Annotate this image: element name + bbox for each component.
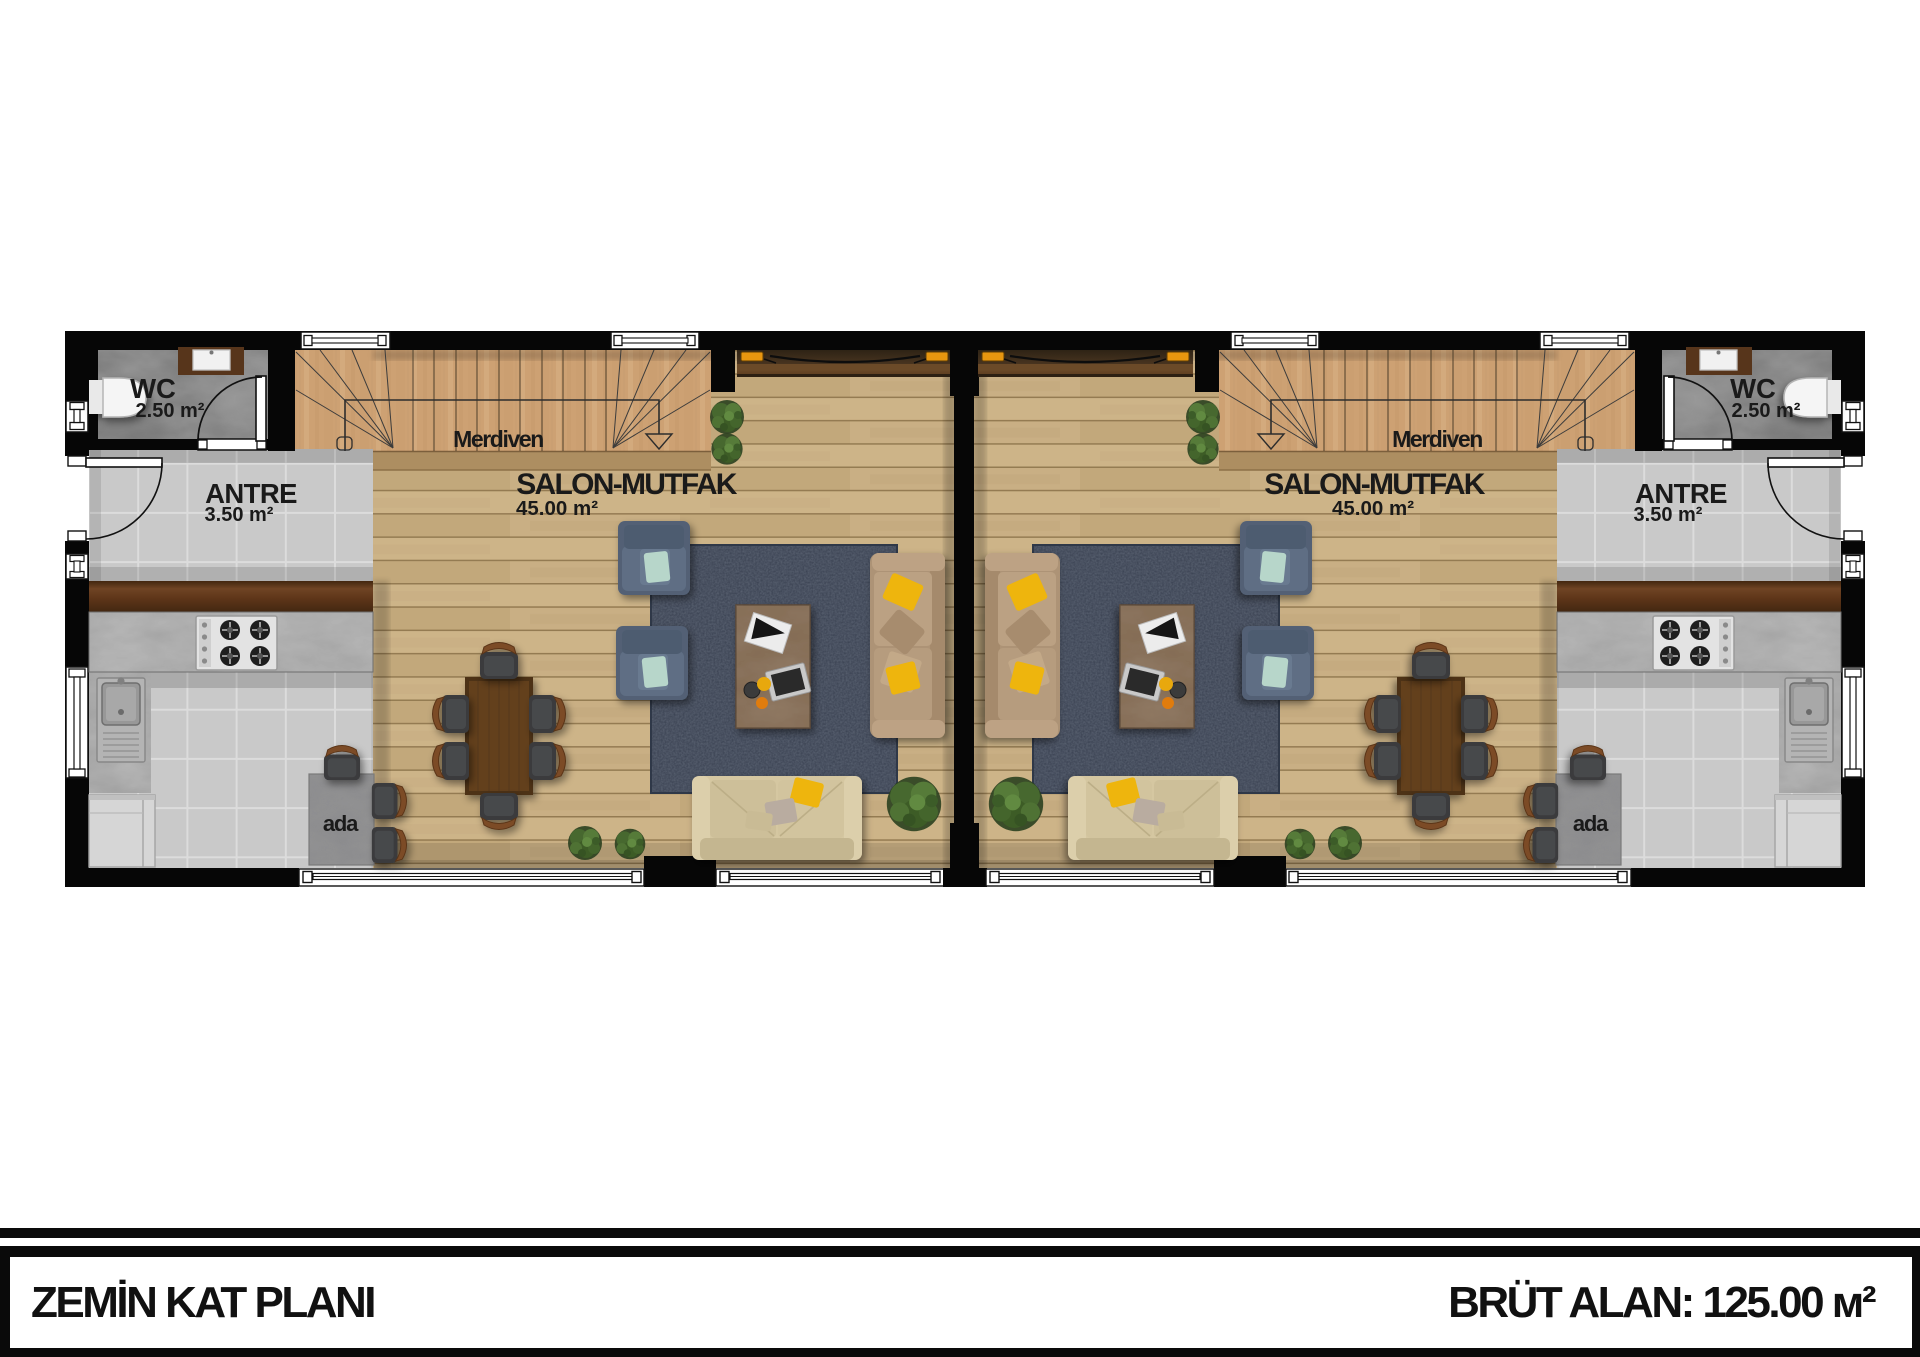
svg-text:45.00 m²: 45.00 m²	[516, 497, 598, 520]
svg-text:45.00 m²: 45.00 m²	[1332, 497, 1414, 520]
svg-text:BRÜT ALAN: 125.00 м²: BRÜT ALAN: 125.00 м²	[1448, 1278, 1876, 1327]
svg-text:ZEMİN KAT PLANI: ZEMİN KAT PLANI	[31, 1278, 374, 1327]
svg-text:Merdiven: Merdiven	[1392, 426, 1482, 452]
svg-text:ada: ada	[323, 811, 359, 836]
svg-text:2.50 m²: 2.50 m²	[1732, 400, 1801, 422]
svg-text:2.50 m²: 2.50 m²	[136, 400, 205, 422]
svg-text:ada: ada	[1573, 811, 1609, 836]
svg-text:Merdiven: Merdiven	[453, 426, 543, 452]
svg-text:3.50 m²: 3.50 m²	[205, 504, 274, 526]
svg-text:3.50 m²: 3.50 m²	[1634, 504, 1703, 526]
